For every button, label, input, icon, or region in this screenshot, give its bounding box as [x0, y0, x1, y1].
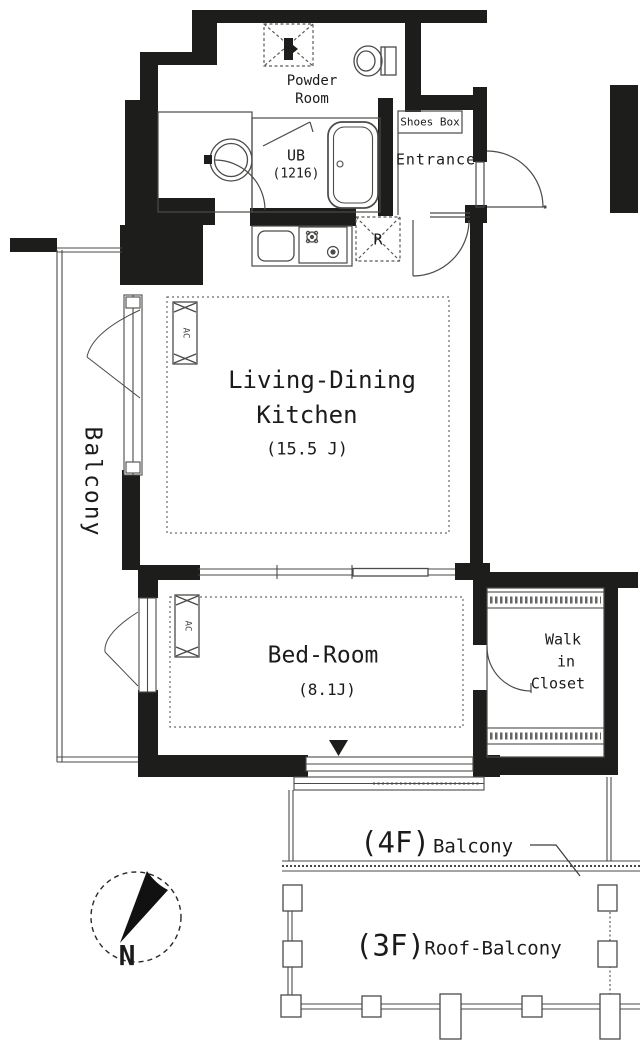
entry-direction-marker — [329, 740, 348, 756]
bedroom-size-label: (8.1J) — [298, 682, 356, 698]
powder-room-label-line2: Room — [295, 92, 329, 106]
powder-room-label-line1: Powder — [287, 74, 338, 88]
hall-to-ldk-door-arc — [413, 220, 469, 276]
side-balcony-label: Balcony — [81, 427, 104, 538]
bedroom-label: Bed-Room — [268, 645, 379, 668]
closet-shelves — [487, 592, 604, 744]
ldk-label-line1: Living-Dining — [228, 368, 416, 392]
toilet-icon — [354, 46, 396, 76]
walk-in-closet-label-line1: Walk — [545, 633, 581, 648]
third-floor-label: (3F) — [355, 932, 425, 961]
bathtub-icon — [328, 122, 378, 208]
compass-north-label: N — [119, 942, 136, 970]
bedroom-ac-label: AC — [183, 621, 192, 632]
stove-icon — [299, 227, 347, 263]
bedroom-window — [139, 598, 156, 692]
ldk-ac-label: AC — [181, 328, 190, 339]
closet-door-arc — [487, 647, 531, 693]
sliding-partition — [198, 565, 455, 579]
fence-posts — [281, 885, 620, 1039]
compass-icon — [91, 871, 181, 962]
bath-door-line — [263, 122, 313, 146]
entrance-label: Entrance — [396, 153, 476, 168]
wash-basin-icon — [204, 139, 252, 181]
kitchen-sink-icon — [258, 231, 294, 261]
fourth-floor-label: (4F) — [360, 829, 430, 858]
refrigerator-symbol-label: R — [373, 233, 382, 248]
unit-bath-size-label: (1216) — [273, 168, 320, 181]
faucet-icon — [284, 38, 298, 60]
entrance-door-arc — [487, 151, 547, 209]
third-floor-roof-balcony-label: Roof-Balcony — [424, 940, 561, 959]
walk-in-closet-label-line3: Closet — [531, 677, 585, 692]
bedroom-window-swing — [105, 612, 138, 686]
unit-bath-label: UB — [287, 149, 305, 164]
fourth-floor-balcony-label: Balcony — [433, 838, 513, 857]
walk-in-closet-label-line2: in — [557, 655, 575, 670]
floor-plan: Powder Room UB (1216) Shoes Box Entrance… — [0, 0, 642, 1052]
washroom-door-arc — [215, 160, 265, 210]
kitchen-counter — [252, 226, 352, 266]
ldk-window — [124, 295, 142, 475]
ldk-label-line2: Kitchen — [256, 403, 357, 427]
shoes-box-label: Shoes Box — [400, 117, 460, 128]
bedroom-south-window — [294, 757, 484, 790]
ldk-size-label: (15.5 J) — [266, 442, 348, 459]
